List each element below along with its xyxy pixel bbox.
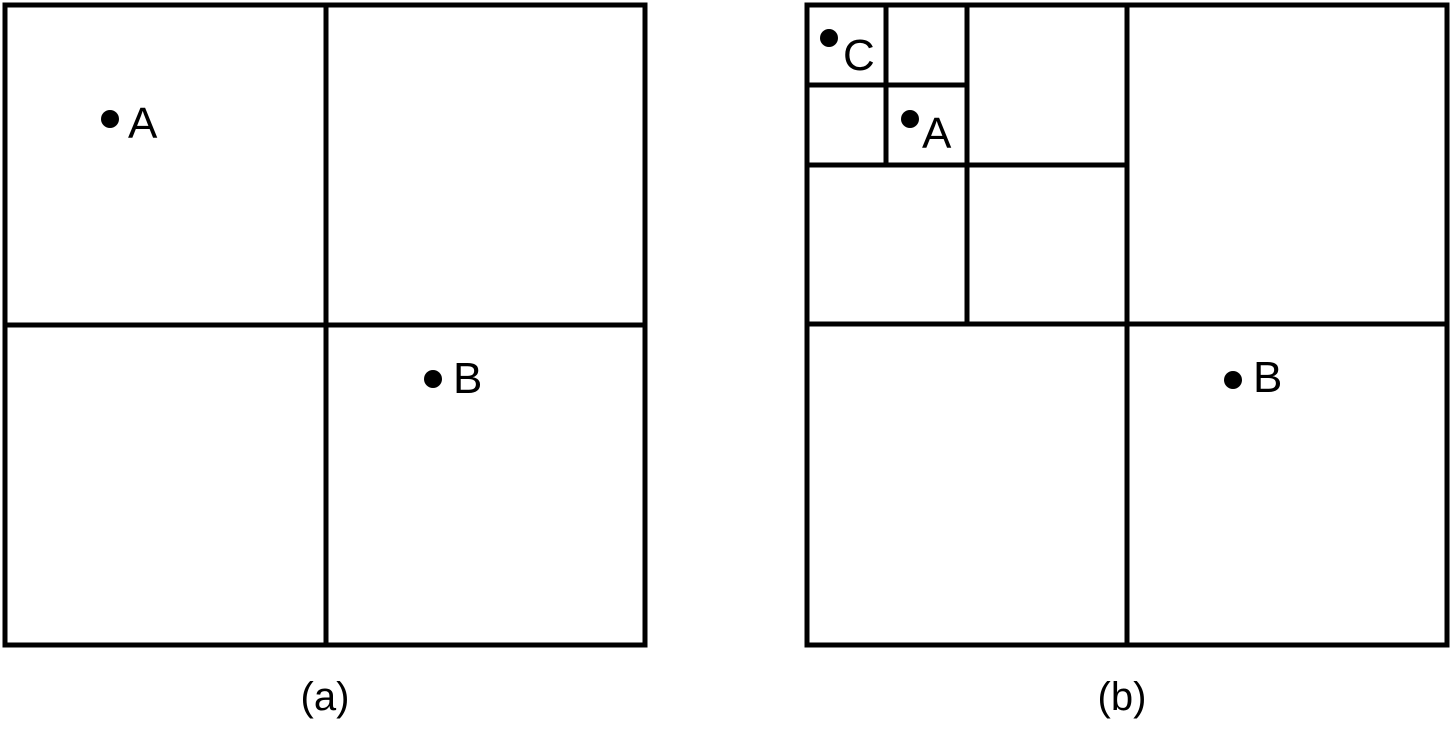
panel-a-caption: (a)	[301, 675, 350, 719]
point-dot-c	[820, 29, 838, 47]
point-dot-a	[901, 110, 919, 128]
point-label-a: A	[922, 109, 952, 158]
point-label-a: A	[128, 99, 158, 148]
point-label-c: C	[843, 31, 875, 80]
point-dot-b	[424, 370, 442, 388]
point-dot-b	[1224, 371, 1242, 389]
panel-a: AB(a)	[5, 5, 645, 719]
quadtree-figure: AB(a)CAB(b)	[0, 0, 1452, 729]
point-label-b: B	[1253, 353, 1282, 402]
panel-b-caption: (b)	[1098, 675, 1147, 719]
figure-canvas: AB(a)CAB(b)	[0, 0, 1452, 729]
panel-b: CAB(b)	[807, 5, 1447, 719]
point-dot-a	[101, 110, 119, 128]
point-label-b: B	[453, 354, 482, 403]
